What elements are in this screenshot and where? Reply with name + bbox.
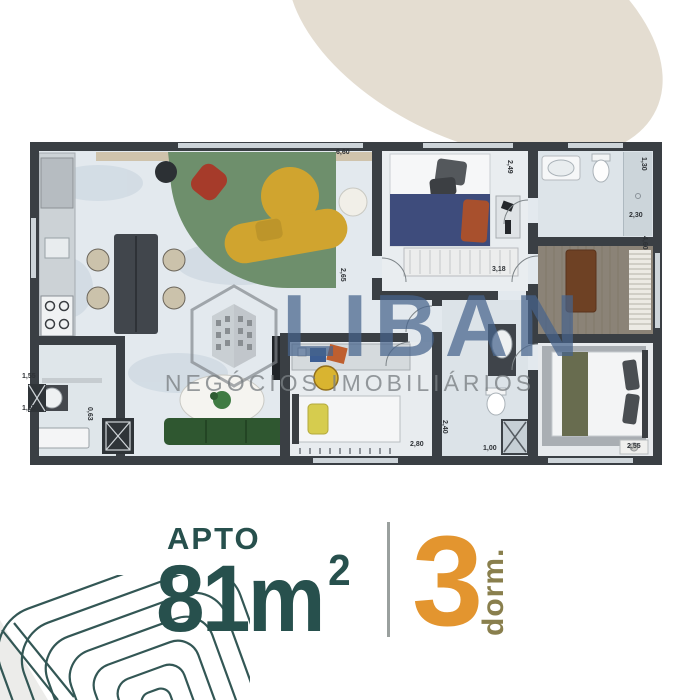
- area-number: 81m: [156, 546, 323, 652]
- dorm-label: dorm.: [479, 520, 509, 636]
- kitchen: [39, 153, 75, 336]
- wardrobe: [404, 248, 518, 276]
- floorplan-page: 6,602,493,182,651,302,304,602,551,002,80…: [0, 0, 685, 700]
- bedroom-1: [382, 151, 528, 291]
- terrace-table: [566, 250, 596, 312]
- master-bedroom: [538, 343, 653, 456]
- terrace: [538, 246, 653, 334]
- floorplan-drawing: [28, 138, 664, 468]
- louver-window: [629, 250, 651, 330]
- bathroom-2: [442, 300, 528, 456]
- area-value: 81m2: [156, 552, 345, 647]
- area-exponent: 2: [328, 546, 351, 595]
- bathroom-1: [538, 151, 653, 237]
- dorm-count: 3: [412, 518, 483, 646]
- floorplan: [28, 138, 664, 468]
- side-table: [155, 161, 177, 183]
- bedroom-3: [290, 342, 432, 456]
- caption-divider: [387, 522, 390, 637]
